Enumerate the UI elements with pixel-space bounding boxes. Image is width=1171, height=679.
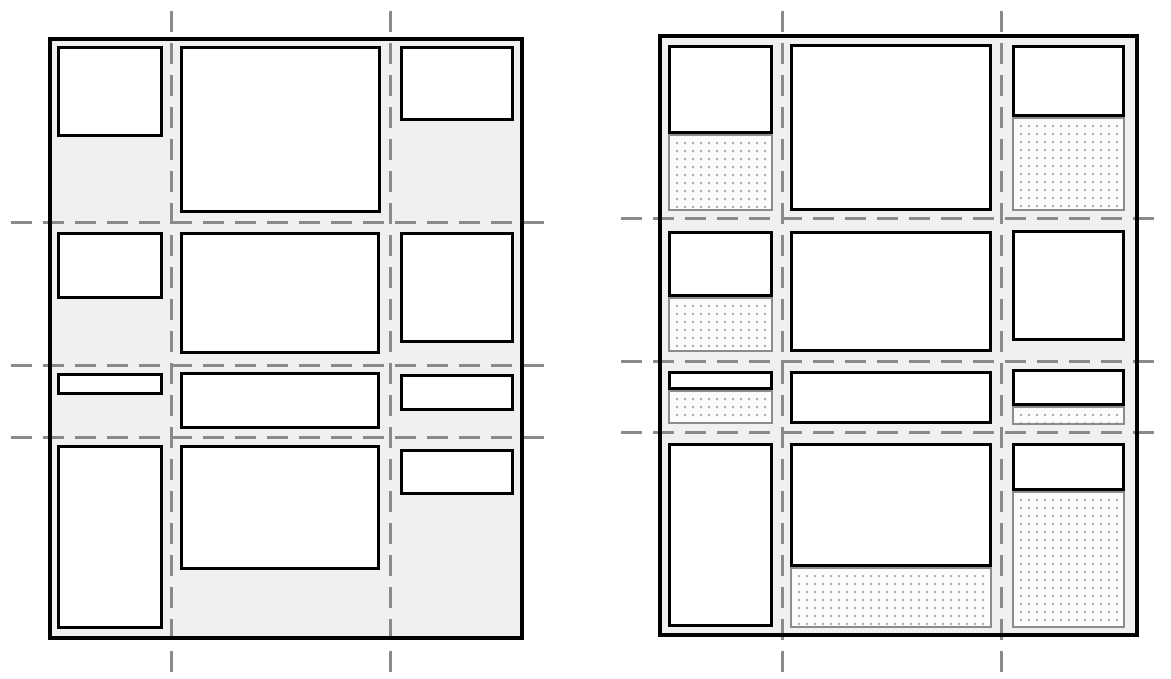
left-grid-diagram-grid-item — [180, 445, 380, 570]
right-grid-diagram-grid-item — [790, 371, 992, 424]
left-grid-diagram-grid-item — [400, 374, 514, 411]
right-grid-diagram-grid-item — [1012, 230, 1125, 341]
left-grid-diagram-grid-item — [400, 232, 514, 343]
left-grid-diagram-grid-item — [57, 445, 163, 629]
right-grid-diagram-grid-track-line-horizontal — [621, 360, 1157, 363]
right-grid-diagram-empty-track-space — [668, 297, 773, 352]
right-grid-diagram-grid-track-line-vertical — [781, 11, 784, 672]
left-grid-diagram-grid-item — [400, 46, 514, 121]
left-grid-diagram-grid-track-line-vertical — [170, 11, 173, 672]
left-grid-diagram-grid-item — [180, 46, 381, 213]
left-grid-diagram-grid-item — [180, 232, 380, 354]
left-grid-diagram-grid-track-line-horizontal — [11, 221, 547, 224]
right-grid-diagram-empty-track-space — [668, 134, 773, 211]
right-grid-diagram-empty-track-space — [1012, 117, 1125, 211]
right-grid-diagram-empty-track-space — [668, 390, 773, 424]
left-grid-diagram-grid-item — [57, 373, 163, 395]
right-grid-diagram-grid-item — [1012, 443, 1125, 491]
right-grid-diagram-grid-track-line-vertical — [1000, 11, 1003, 672]
right-grid-diagram-empty-track-space — [1012, 406, 1125, 425]
left-grid-diagram-grid-item — [180, 372, 380, 429]
right-grid-diagram-grid-item — [1012, 369, 1125, 406]
right-grid-diagram-grid-item — [790, 231, 992, 352]
left-grid-diagram-grid-item — [57, 46, 163, 137]
left-grid-diagram-grid-track-line-vertical — [389, 11, 392, 672]
right-grid-diagram-grid-item — [668, 45, 773, 134]
right-grid-diagram-empty-track-space — [790, 567, 992, 628]
right-grid-diagram-grid-item — [1012, 45, 1125, 117]
figure-canvas — [0, 0, 1171, 679]
right-grid-diagram-grid-item — [668, 231, 773, 297]
right-grid-diagram-grid-track-line-horizontal — [621, 217, 1157, 220]
left-grid-diagram-grid-item — [400, 449, 514, 495]
right-grid-diagram-grid-item — [790, 443, 992, 567]
left-grid-diagram-grid-item — [57, 232, 163, 299]
right-grid-diagram-grid-item — [668, 371, 773, 390]
right-grid-diagram-empty-track-space — [1012, 491, 1125, 628]
right-grid-diagram-grid-item — [790, 44, 992, 211]
right-grid-diagram-grid-item — [668, 443, 773, 627]
left-grid-diagram-grid-track-line-horizontal — [11, 436, 547, 439]
right-grid-diagram-grid-track-line-horizontal — [621, 431, 1157, 434]
left-grid-diagram-grid-track-line-horizontal — [11, 364, 547, 367]
